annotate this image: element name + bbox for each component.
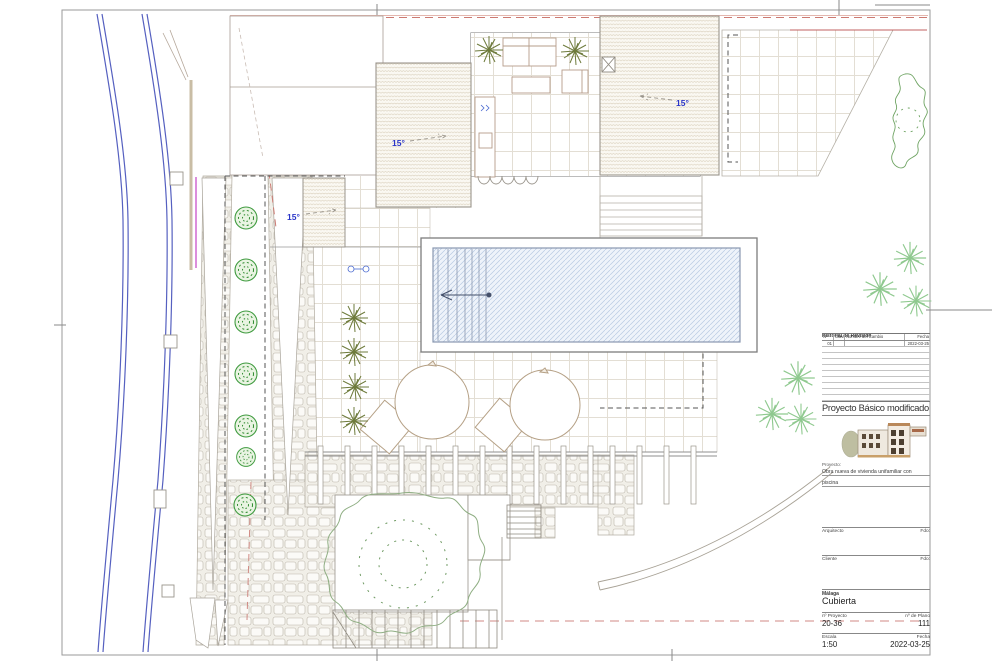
rev-cell-num: 01 [822,341,833,347]
scale-date-values: 1:50 2022-03-25 [822,640,930,649]
rev-col-num: Nº [822,334,833,340]
scale-value: 1:50 [822,640,837,649]
coffee-table [512,77,550,93]
rev-col-date: Fecha [904,334,930,340]
architect-sign-label: Fdo: [920,529,930,534]
round-table-1 [395,365,469,439]
project-label: Proyecto: [822,462,930,467]
architect-label: Arquitecto [822,529,844,534]
sheet-canvas: 15° 15° 15° [0,0,1000,666]
stairs-upper-right [600,196,702,236]
roof-small [303,178,345,247]
corner-tree [892,74,928,168]
client-row: Cliente Fdo: [822,555,930,562]
client-label: Cliente [822,557,837,562]
rev-col-desc: Nombre del Cambio [844,334,904,340]
sink [479,133,492,148]
chimney-icon [602,57,615,72]
architect-row: Arquitecto Fdo: [822,527,930,534]
project-status: Proyecto Básico modificado [822,403,930,416]
slope-label-small: 15° [287,212,300,222]
title-block: Historial de Revisión Nº Clave Nombre de… [822,333,930,655]
sofa [503,38,556,66]
scale-date-labels: Escala Fecha [822,633,930,640]
project-number-labels: nº Proyecto nº de Plano [822,612,930,619]
hedge-bushes [234,207,257,516]
project-thumbnail-image [830,421,938,461]
plan-no-value: 111 [918,619,930,628]
northeast-terrace [722,30,893,176]
slope-label-center: 15° [392,138,405,148]
sheet-name: Cubierta [822,596,930,606]
pool-deck [421,238,757,352]
client-sign-label: Fdo: [920,557,930,562]
rev-cell-date: 2022-03-25 [904,341,930,347]
rev-col-key: Clave [833,334,844,340]
roof-center [376,63,471,207]
armchair [562,70,588,93]
rev-cell-desc [844,341,904,347]
rev-cell-key [833,341,844,347]
project-desc-2: piscina [822,480,930,487]
date-value: 2022-03-25 [890,640,930,649]
road [97,14,172,652]
stone-block-south [598,455,634,535]
driveway-lines [163,30,188,80]
project-desc-1: Obra nueva de vivienda unifamiliar con [822,469,930,476]
revision-row-empty [822,395,930,401]
slope-label-east: 15° [676,98,689,108]
revision-table: Nº Clave Nombre del Cambio Fecha 01 2022… [822,333,930,402]
project-number-values: 20-36 111 [822,619,930,628]
round-table-2 [510,370,580,440]
project-no-value: 20-36 [822,619,842,628]
roof-east [600,16,719,175]
